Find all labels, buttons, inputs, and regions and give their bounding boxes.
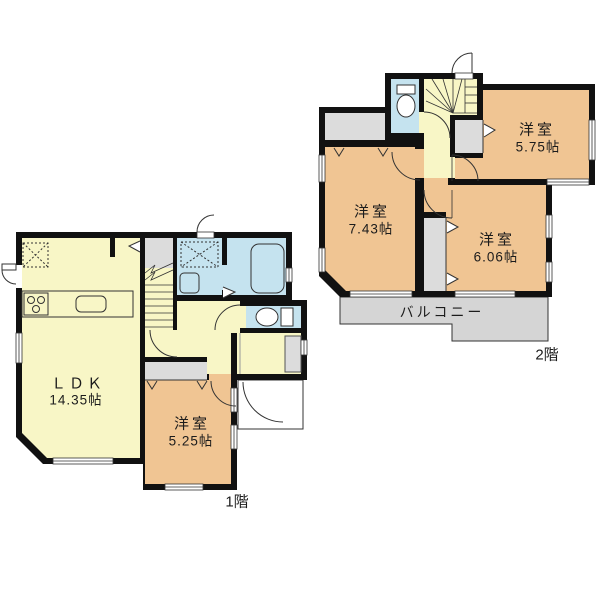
closet-606 [424,218,446,291]
closet-1f [145,362,207,380]
shoe-cabinet [285,336,301,372]
stairs-landing [145,238,173,268]
floor-plan-drawing [0,0,600,599]
bedroom-606-label: 洋室 [479,233,515,248]
bedroom-606-area: 6.06帖 [474,250,519,264]
ldk-label: ＬＤＫ [51,377,105,392]
wall-stub [110,238,115,257]
bathroom [227,238,286,295]
floor-plan: ＬＤＫ 14.35帖 洋室 5.25帖 1階 洋室 7.43帖 洋室 6.06帖… [0,0,600,599]
washroom-back-door [197,215,214,238]
stairwell-top-door [452,53,473,79]
bedroom-575-area: 5.75帖 [516,140,561,154]
ldk-area: 14.35帖 [49,393,102,407]
kitchen-side-door [2,264,22,288]
hallway [177,301,240,333]
bedroom-743-area: 7.43帖 [349,222,394,236]
toilet-fixture-1f [256,308,293,326]
bedroom-743-label: 洋室 [354,205,390,220]
entrance-porch [238,380,303,429]
second-floor [319,53,595,297]
closet-743 [325,113,385,140]
closet-575 [455,120,483,153]
bedroom-525-area: 5.25帖 [169,434,214,448]
ldk-room [22,238,140,458]
bedroom-525-label: 洋室 [174,417,210,432]
bedroom-575-label: 洋室 [519,123,555,138]
first-floor [2,215,307,490]
toilet-fixture-2f [397,85,415,117]
floor-1-label: 1階 [225,495,248,510]
floor-2-label: 2階 [535,348,558,363]
balcony-label: バルコニー [400,305,485,319]
